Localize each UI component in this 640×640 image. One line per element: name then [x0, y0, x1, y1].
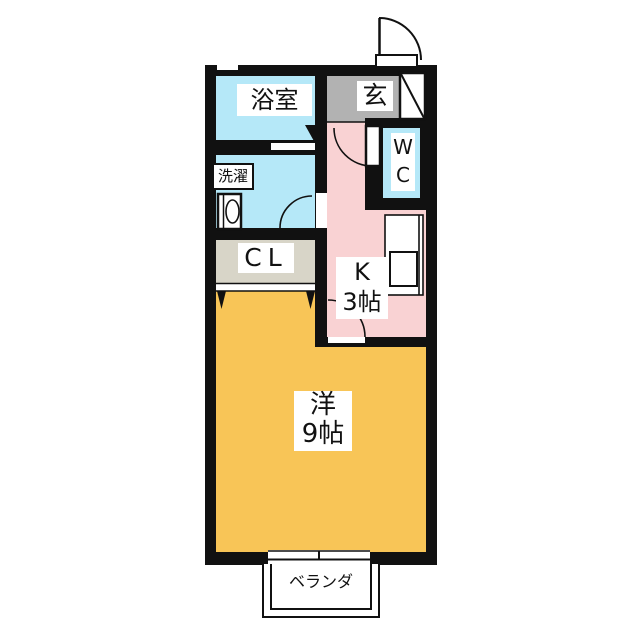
- closet-label: CL: [238, 243, 294, 273]
- closet-door: [216, 284, 315, 291]
- wc-label: W C: [391, 133, 415, 191]
- western-room-label: 洋 9帖: [294, 391, 352, 451]
- sliding-window: [268, 550, 370, 564]
- bathroom-label: 浴室: [237, 84, 312, 116]
- entrance-label: 玄: [357, 81, 393, 111]
- washroom-door-opening: [316, 193, 327, 228]
- floorplan: 浴室 玄 W C 洗濯 CL K 3帖 洋 9帖 ベランダ: [0, 0, 640, 640]
- bath-vent-window: [217, 64, 238, 70]
- entrance-door-icon: [376, 18, 421, 67]
- bath-sliding-door: [271, 143, 315, 150]
- kitchen-door-opening: [328, 337, 365, 343]
- veranda-label: ベランダ: [275, 571, 367, 593]
- laundry-label: 洗濯: [212, 163, 254, 190]
- kitchen-label: K 3帖: [336, 257, 388, 319]
